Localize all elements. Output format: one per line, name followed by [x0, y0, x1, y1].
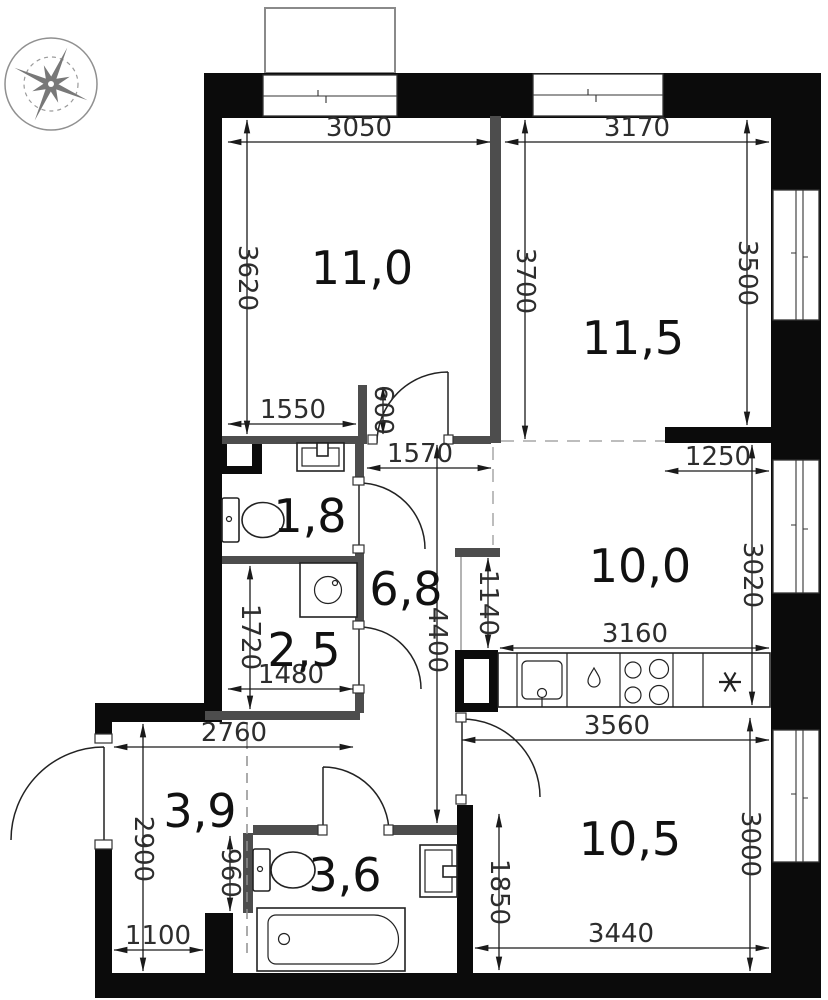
dim-3500: 3500	[732, 240, 762, 306]
dim-3050: 3050	[326, 113, 392, 143]
room-area-2-5: 2,5	[267, 623, 340, 677]
compass-rose	[5, 38, 97, 130]
dim-3020: 3020	[737, 542, 767, 608]
dim-1550: 1550	[260, 395, 326, 425]
toilet-3-6	[253, 849, 270, 891]
door-living10-5	[462, 719, 540, 797]
door-bath1-8	[359, 483, 425, 549]
balcony-outline	[265, 8, 395, 73]
dim-1850: 1850	[484, 859, 514, 925]
room-area-10-0: 10,0	[589, 539, 691, 593]
room-area-11-0: 11,0	[311, 241, 413, 295]
room-area-1-8: 1,8	[273, 489, 346, 543]
dim-3170: 3170	[604, 113, 670, 143]
door-entrance	[11, 747, 104, 840]
room-area-3-9: 3,9	[163, 784, 236, 838]
dim-3700: 3700	[510, 248, 540, 314]
bathtub	[257, 908, 405, 971]
dim-3560: 3560	[584, 711, 650, 741]
dim-600: 600	[368, 385, 398, 435]
dim-3620: 3620	[232, 245, 262, 311]
room-area-3-6: 3,6	[308, 848, 381, 902]
washing-machine	[300, 563, 357, 617]
room-area-6-8: 6,8	[369, 562, 442, 616]
dim-1140: 1140	[473, 570, 503, 636]
dim-1250: 1250	[685, 442, 751, 472]
dim-1570: 1570	[387, 439, 453, 469]
room-labels: 11,0 11,5 1,8 6,8 2,5 10,0 3,9 3,6 10,5	[163, 241, 691, 902]
dim-3440: 3440	[588, 919, 654, 949]
dim-1100: 1100	[125, 921, 191, 951]
dim-960: 960	[215, 848, 245, 898]
toilet-1-8	[222, 498, 239, 542]
door-storage2-5	[359, 627, 421, 689]
dim-3160: 3160	[602, 619, 668, 649]
door-bath3-6	[323, 767, 389, 833]
dim-4400: 4400	[422, 607, 452, 673]
room-area-11-5: 11,5	[582, 311, 684, 365]
kitchen-fixtures	[498, 653, 770, 707]
room-area-10-5: 10,5	[579, 812, 681, 866]
floor-plan: 3050 3170 3620 3700 3500 1550 600 1570 1…	[0, 0, 828, 1000]
dim-3000: 3000	[735, 811, 765, 877]
dim-2900: 2900	[128, 816, 158, 882]
dim-2760: 2760	[201, 718, 267, 748]
